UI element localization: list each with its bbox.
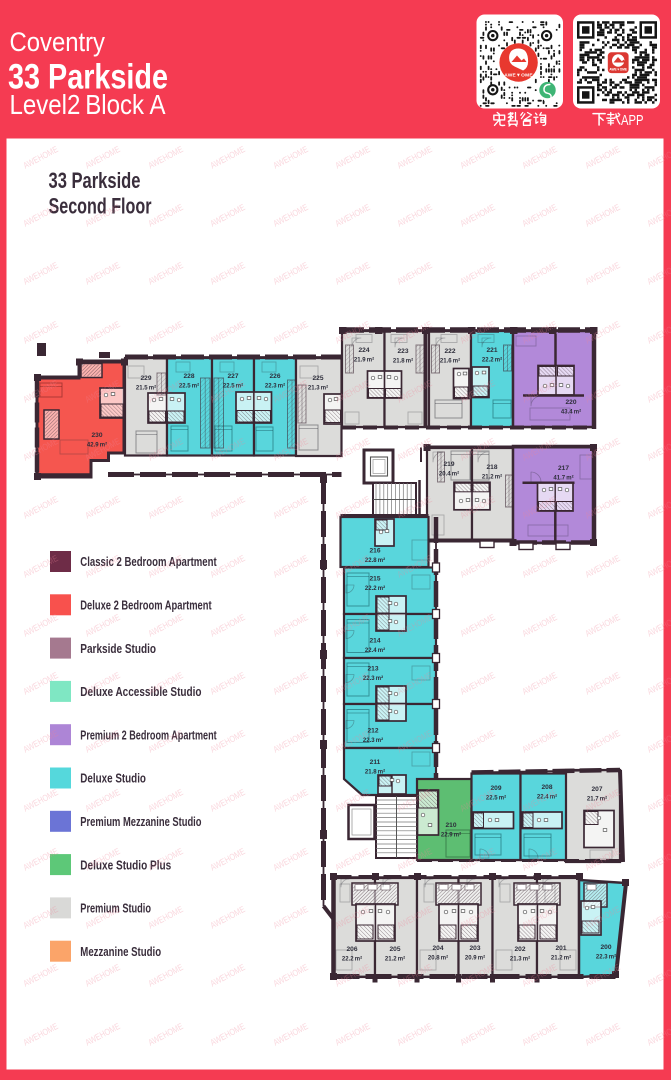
svg-text:226: 226 — [269, 373, 280, 380]
svg-text:22.4 m²: 22.4 m² — [365, 647, 385, 654]
svg-text:21.2 m²: 21.2 m² — [482, 474, 502, 481]
svg-text:22.2 m²: 22.2 m² — [482, 357, 502, 364]
svg-text:205: 205 — [389, 946, 400, 953]
svg-text:Coventry: Coventry — [10, 27, 106, 57]
svg-text:217: 217 — [558, 465, 569, 472]
svg-text:222: 222 — [444, 348, 455, 355]
svg-text:201: 201 — [555, 945, 566, 952]
svg-text:Deluxe Studio: Deluxe Studio — [80, 771, 146, 786]
svg-text:228: 228 — [183, 373, 194, 380]
svg-text:Premium Mezzanine Studio: Premium Mezzanine Studio — [80, 814, 201, 829]
svg-text:223: 223 — [397, 348, 408, 355]
svg-text:Deluxe 2 Bedroom Apartment: Deluxe 2 Bedroom Apartment — [80, 598, 212, 613]
svg-text:211: 211 — [370, 759, 381, 766]
svg-text:21.9 m²: 21.9 m² — [354, 357, 374, 364]
svg-text:22.2 m²: 22.2 m² — [342, 956, 362, 963]
svg-text:21.8 m²: 21.8 m² — [393, 358, 413, 365]
svg-text:206: 206 — [346, 946, 357, 953]
svg-text:21.3 m²: 21.3 m² — [510, 956, 530, 963]
svg-text:224: 224 — [358, 347, 369, 354]
svg-text:21.2 m²: 21.2 m² — [551, 955, 571, 962]
svg-text:43.4 m²: 43.4 m² — [561, 409, 581, 416]
svg-text:22.3 m²: 22.3 m² — [265, 383, 285, 390]
svg-text:207: 207 — [591, 786, 602, 793]
svg-text:21.6 m²: 21.6 m² — [440, 358, 460, 365]
svg-text:214: 214 — [369, 638, 380, 645]
svg-text:20.9 m²: 20.9 m² — [465, 955, 485, 962]
svg-text:22.9 m²: 22.9 m² — [441, 832, 461, 839]
svg-text:227: 227 — [227, 373, 238, 380]
svg-text:APP: APP — [621, 112, 644, 129]
svg-text:216: 216 — [369, 548, 380, 555]
svg-text:220: 220 — [565, 399, 576, 406]
svg-text:22.2 m²: 22.2 m² — [365, 585, 385, 592]
svg-text:215: 215 — [369, 576, 380, 583]
svg-text:22.3 m²: 22.3 m² — [596, 954, 616, 961]
svg-text:203: 203 — [469, 945, 480, 952]
svg-text:218: 218 — [486, 464, 497, 471]
svg-text:21.5 m²: 21.5 m² — [136, 385, 156, 392]
svg-text:221: 221 — [486, 347, 497, 354]
svg-text:219: 219 — [443, 461, 454, 468]
svg-text:AWE▼OME: AWE▼OME — [504, 72, 533, 78]
svg-text:225: 225 — [312, 375, 323, 382]
svg-text:200: 200 — [600, 944, 611, 951]
svg-text:213: 213 — [367, 666, 378, 673]
svg-text:AWE▼OME: AWE▼OME — [609, 68, 627, 72]
svg-text:20.4 m²: 20.4 m² — [439, 471, 459, 478]
svg-text:202: 202 — [514, 946, 525, 953]
svg-text:Mezzanine Studio: Mezzanine Studio — [80, 944, 161, 959]
svg-text:Parkside Studio: Parkside Studio — [80, 641, 156, 656]
svg-text:20.8 m²: 20.8 m² — [428, 955, 448, 962]
svg-text:230: 230 — [91, 432, 102, 439]
svg-text:33 Parkside: 33 Parkside — [49, 168, 141, 193]
svg-text:Level2 Block A: Level2 Block A — [10, 89, 167, 120]
svg-text:21.8 m²: 21.8 m² — [365, 769, 385, 776]
svg-text:210: 210 — [445, 822, 456, 829]
svg-text:204: 204 — [432, 945, 443, 952]
svg-text:21.3 m²: 21.3 m² — [308, 385, 328, 392]
svg-text:21.2 m²: 21.2 m² — [385, 956, 405, 963]
svg-text:41.7 m²: 41.7 m² — [553, 475, 573, 482]
svg-text:229: 229 — [140, 375, 151, 382]
